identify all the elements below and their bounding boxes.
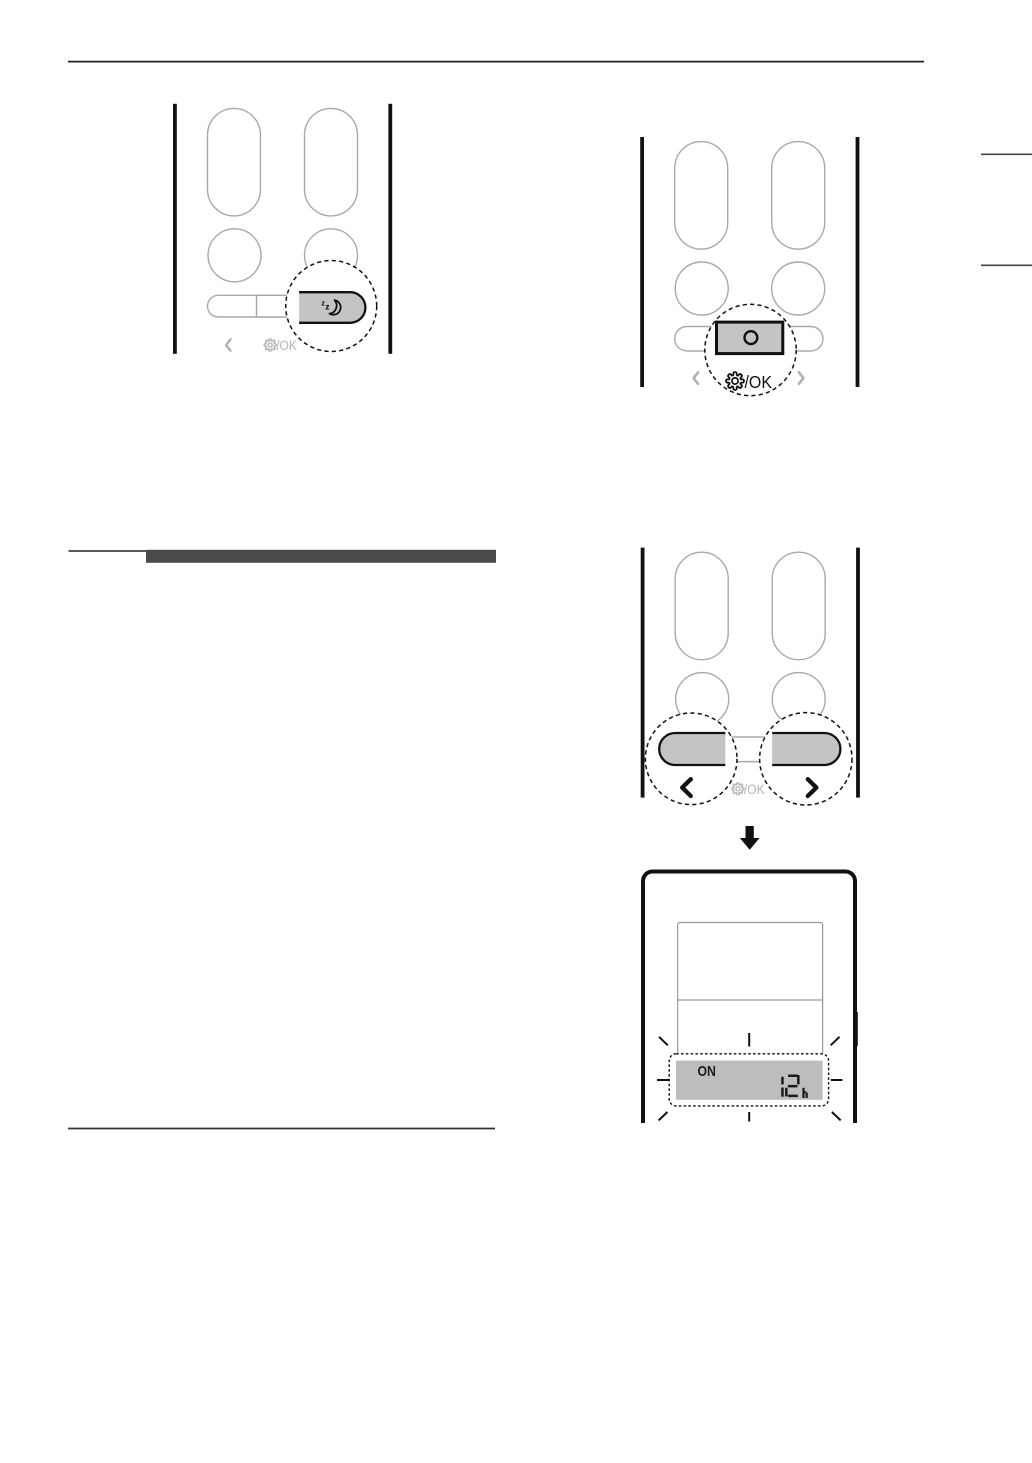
svg-text:/OK: /OK xyxy=(745,372,773,392)
svg-text:z: z xyxy=(325,302,329,312)
svg-text:/OK: /OK xyxy=(744,782,765,797)
svg-text:ON: ON xyxy=(698,1064,716,1080)
svg-text:/OK: /OK xyxy=(276,338,297,353)
